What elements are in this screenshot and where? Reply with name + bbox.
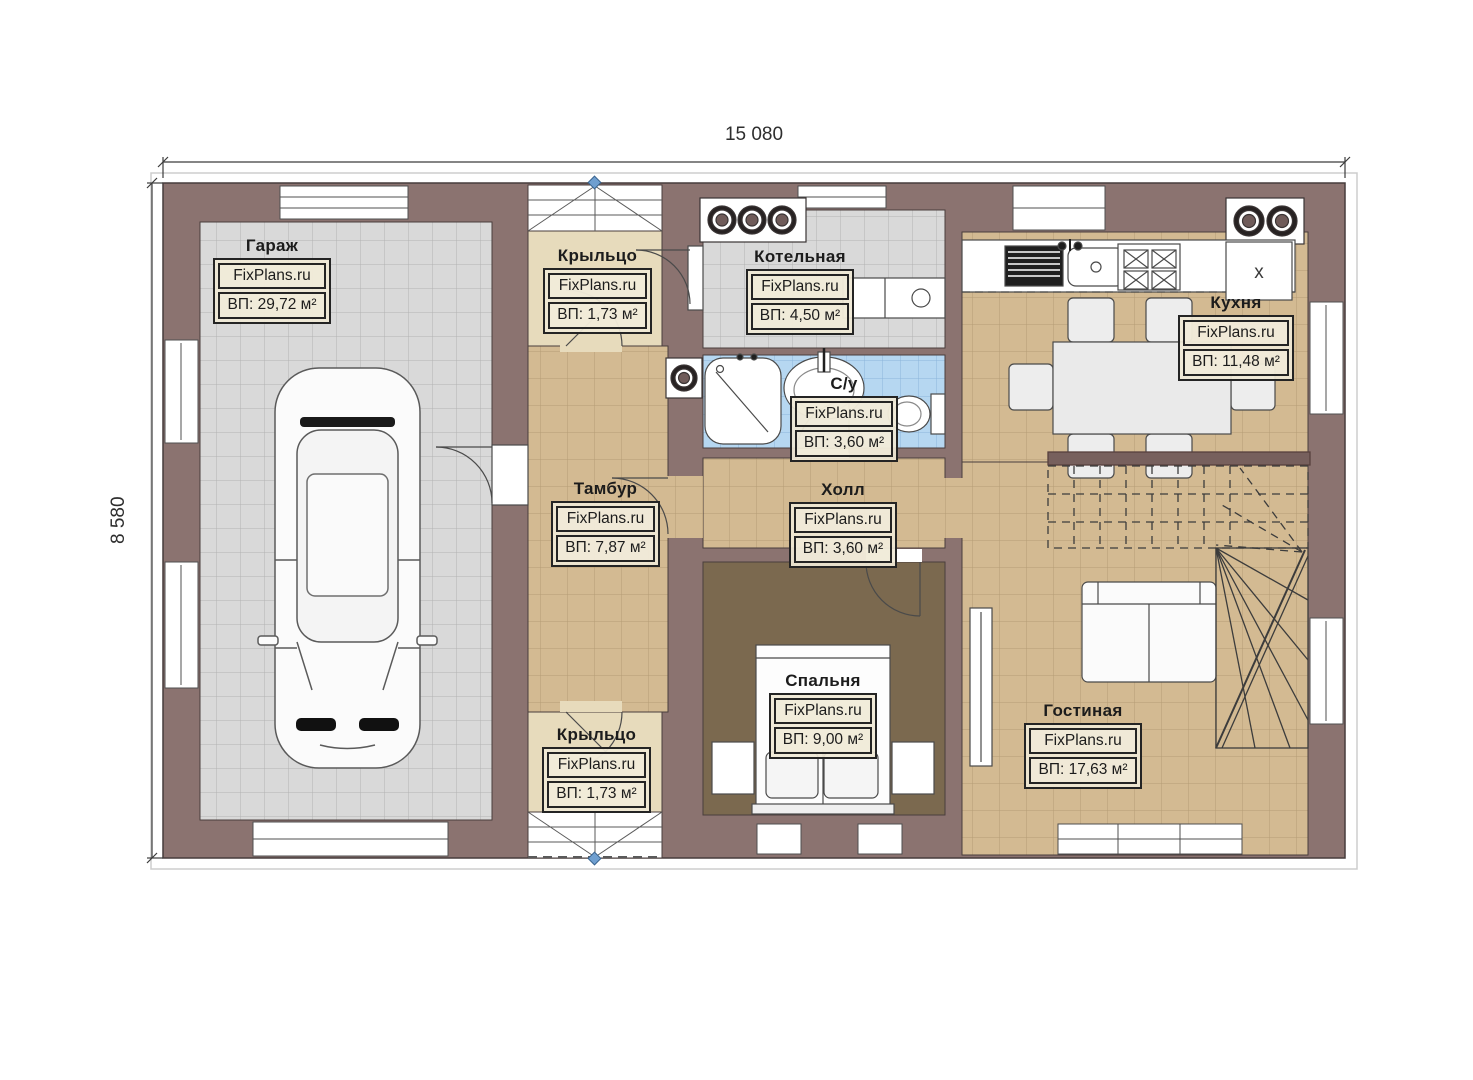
room-name: Гараж [246, 236, 298, 256]
room-site: FixPlans.ru [547, 752, 645, 778]
bathroom-flue-circle [671, 365, 697, 391]
room-area: ВП: 17,63 м² [1029, 757, 1136, 783]
dimension-width-label: 15 080 [163, 124, 1345, 146]
stairwell-beam [1048, 452, 1310, 465]
room-info-box: FixPlans.ru ВП: 29,72 м² [213, 258, 330, 324]
room-label-living: Гостиная FixPlans.ru ВП: 17,63 м² [1019, 701, 1147, 789]
room-label-bathroom: С/у FixPlans.ru ВП: 3,60 м² [793, 374, 895, 462]
room-area: ВП: 11,48 м² [1183, 349, 1289, 375]
car [258, 368, 437, 768]
garage-top-window [280, 186, 408, 219]
room-label-garage: Гараж FixPlans.ru ВП: 29,72 м² [197, 236, 347, 324]
nightstand [712, 742, 754, 794]
garage-door-opening [492, 445, 528, 505]
room-site: FixPlans.ru [794, 507, 892, 533]
headboard [752, 804, 894, 814]
fridge: x [1226, 242, 1292, 300]
room-name: Кухня [1210, 293, 1261, 313]
room-name: Котельная [754, 247, 846, 267]
room-info-box: FixPlans.ru ВП: 3,60 м² [789, 502, 897, 568]
vestibule-hall-opening [666, 476, 703, 538]
room-label-vestibule: Тамбур FixPlans.ru ВП: 7,87 м² [548, 479, 663, 567]
room-label-kitchen: Кухня FixPlans.ru ВП: 11,48 м² [1177, 293, 1295, 381]
room-info-box: FixPlans.ru ВП: 17,63 м² [1024, 723, 1141, 789]
room-site: FixPlans.ru [795, 401, 893, 427]
room-area: ВП: 3,60 м² [794, 536, 892, 562]
car-headlight-right [359, 718, 399, 731]
room-name: Спальня [785, 671, 861, 691]
room-site: FixPlans.ru [1029, 728, 1136, 754]
room-info-box: FixPlans.ru ВП: 3,60 м² [790, 396, 898, 462]
svg-text:x: x [1254, 262, 1264, 283]
room-area: ВП: 4,50 м² [751, 303, 849, 329]
room-info-box: FixPlans.ru ВП: 1,73 м² [543, 268, 651, 334]
car-mirror-right [417, 636, 437, 645]
chair [1068, 298, 1114, 342]
room-site: FixPlans.ru [548, 273, 646, 299]
room-info-box: FixPlans.ru ВП: 4,50 м² [746, 269, 854, 335]
kitchen-counter: x [962, 239, 1295, 300]
room-name: Гостиная [1043, 701, 1122, 721]
room-area: ВП: 29,72 м² [218, 292, 325, 318]
room-area: ВП: 9,00 м² [774, 727, 872, 753]
room-area: ВП: 7,87 м² [556, 535, 654, 561]
room-area: ВП: 3,60 м² [795, 430, 893, 456]
boiler-flue-circles [708, 206, 796, 234]
room-info-box: FixPlans.ru ВП: 7,87 м² [551, 501, 659, 567]
room-label-porch-bottom: Крыльцо FixPlans.ru ВП: 1,73 м² [539, 725, 654, 813]
room-name: Крыльцо [557, 725, 636, 745]
room-site: FixPlans.ru [556, 506, 654, 532]
car-mirror-left [258, 636, 278, 645]
room-name: С/у [830, 374, 857, 394]
room-name: Холл [821, 480, 865, 500]
car-rear-spoiler [300, 417, 395, 427]
sink-drainer [1005, 246, 1063, 286]
hall-living-opening [942, 478, 964, 538]
bedroom-bottom-window-2 [858, 824, 902, 854]
room-area: ВП: 1,73 м² [548, 302, 646, 328]
stove [1118, 244, 1180, 290]
room-site: FixPlans.ru [1183, 320, 1289, 346]
shower-cabin [705, 354, 781, 444]
dimension-height-label: 8 580 [98, 183, 140, 858]
room-site: FixPlans.ru [751, 274, 849, 300]
room-label-boiler: Котельная FixPlans.ru ВП: 4,50 м² [735, 247, 865, 335]
car-headlight-left [296, 718, 336, 731]
room-label-bedroom: Спальня FixPlans.ru ВП: 9,00 м² [762, 671, 884, 759]
floor-plan-page: x [0, 0, 1473, 1080]
room-area: ВП: 1,73 м² [547, 781, 645, 807]
room-info-box: FixPlans.ru ВП: 11,48 м² [1178, 315, 1294, 381]
chair [1009, 364, 1053, 410]
sofa [1082, 582, 1216, 682]
room-name: Крыльцо [558, 246, 637, 266]
room-site: FixPlans.ru [774, 698, 872, 724]
entry-bottom-opening [560, 701, 622, 712]
bedroom-bottom-window-1 [757, 824, 801, 854]
room-name: Тамбур [574, 479, 637, 499]
room-site: FixPlans.ru [218, 263, 325, 289]
room-info-box: FixPlans.ru ВП: 1,73 м² [542, 747, 650, 813]
floor-plan-drawing: x [0, 0, 1473, 1080]
room-info-box: FixPlans.ru ВП: 9,00 м² [769, 693, 877, 759]
room-label-porch-top: Крыльцо FixPlans.ru ВП: 1,73 м² [540, 246, 655, 334]
room-label-hall: Холл FixPlans.ru ВП: 3,60 м² [788, 480, 898, 568]
nightstand [892, 742, 934, 794]
